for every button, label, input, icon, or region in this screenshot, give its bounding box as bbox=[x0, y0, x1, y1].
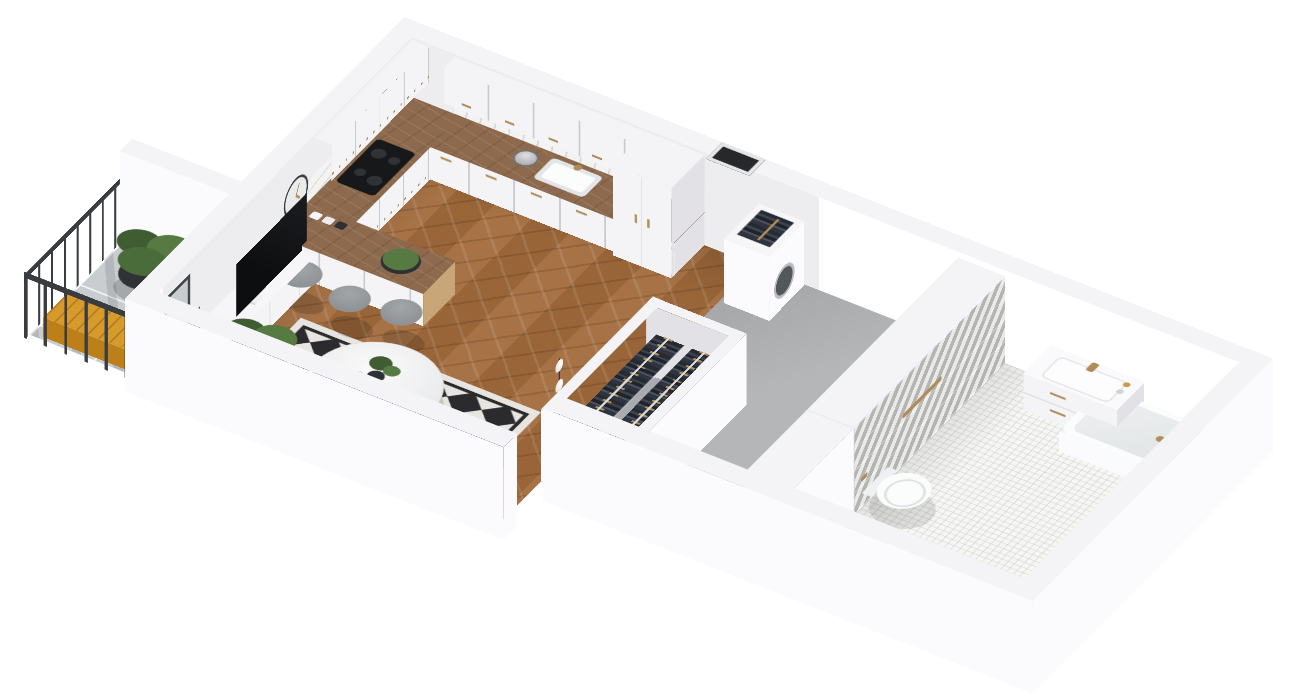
gold-handle bbox=[1050, 409, 1066, 417]
wall-end-face bbox=[1011, 592, 1033, 694]
spice-jar bbox=[333, 221, 348, 231]
wall-end-face bbox=[504, 434, 518, 541]
gold-towel-bar bbox=[903, 376, 942, 420]
washing-machine-door[interactable] bbox=[774, 255, 794, 306]
door-handle[interactable] bbox=[844, 263, 848, 276]
gold-handle bbox=[635, 214, 637, 224]
door-peephole bbox=[879, 256, 882, 260]
shower-bar bbox=[1179, 366, 1212, 382]
floorplan-render-stage bbox=[0, 0, 1293, 700]
spice-jar bbox=[308, 211, 323, 221]
spice-jar bbox=[321, 216, 336, 226]
sink-basin bbox=[540, 162, 596, 193]
toilet-paper-holder bbox=[861, 472, 867, 483]
gold-faucet[interactable] bbox=[1085, 362, 1100, 373]
gold-faucet[interactable] bbox=[572, 164, 584, 172]
serving-bowl-with-greens bbox=[373, 244, 429, 279]
electric-kettle bbox=[508, 147, 543, 169]
gold-handle bbox=[1050, 392, 1066, 400]
gold-handle bbox=[647, 219, 649, 229]
